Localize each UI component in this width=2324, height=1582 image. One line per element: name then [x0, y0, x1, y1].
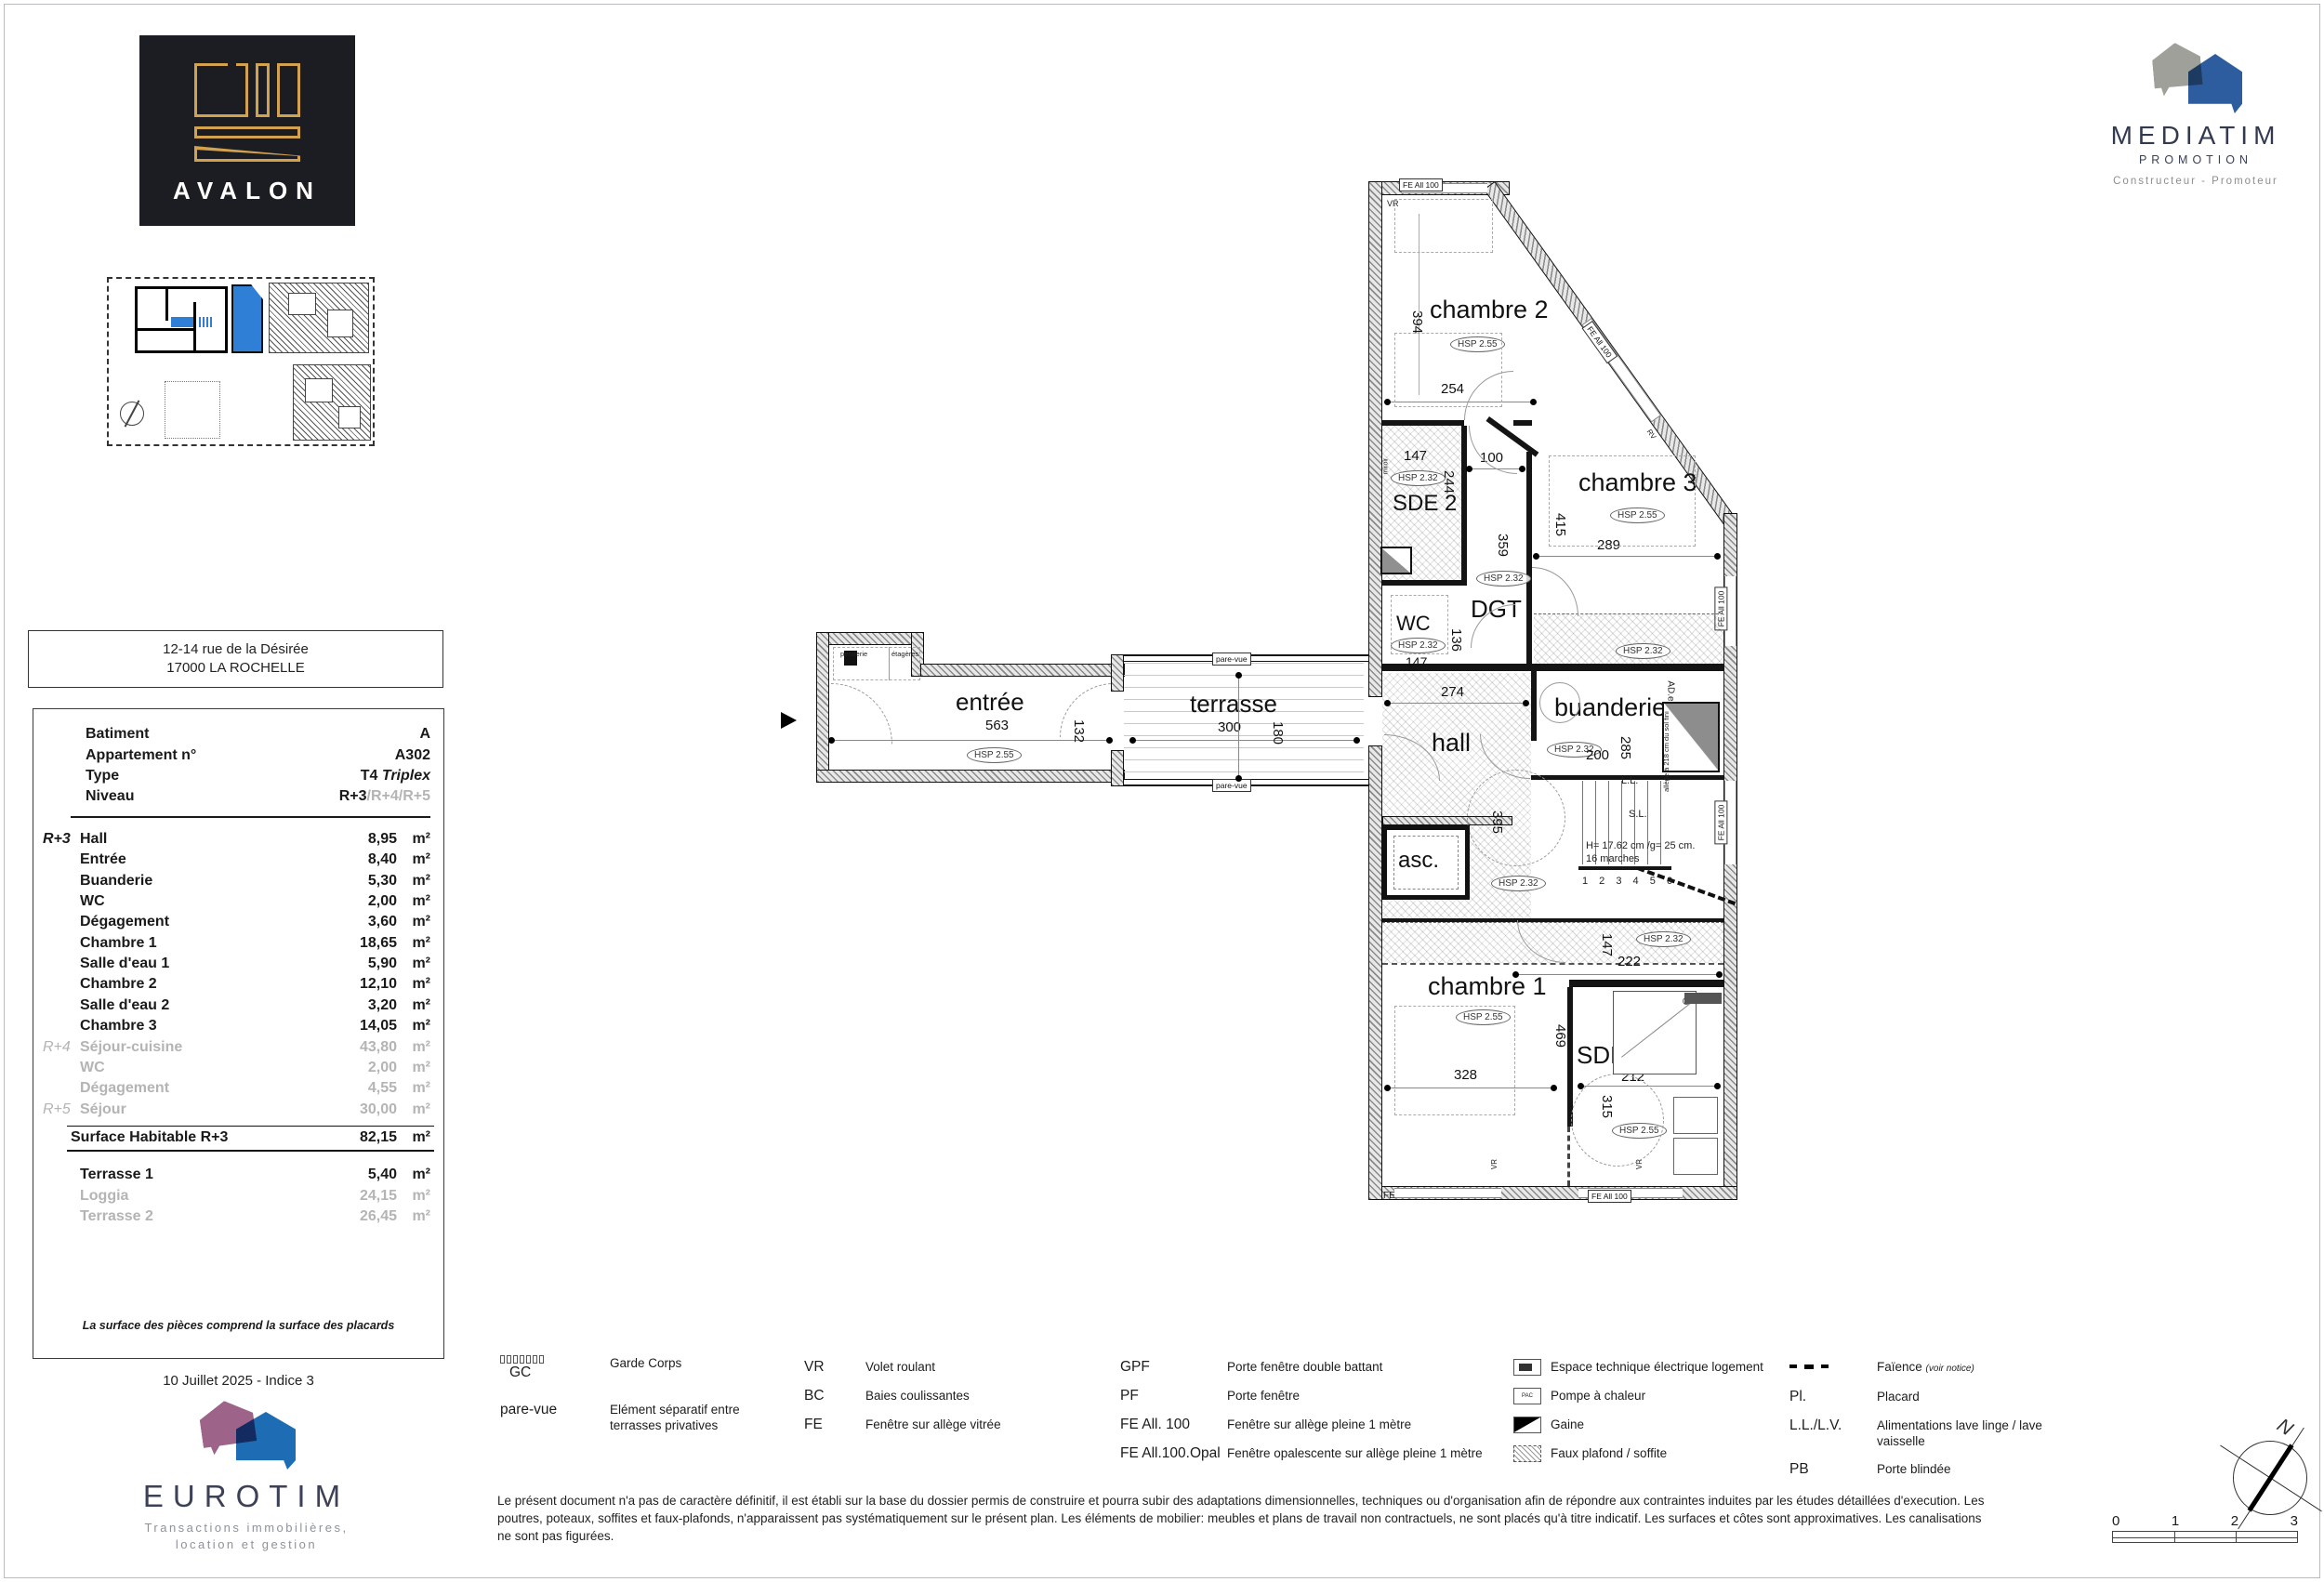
fixture — [1391, 595, 1448, 654]
legend-item-gc: GC Garde Corps — [500, 1355, 798, 1381]
info-row-batiment: Batiment A — [33, 724, 443, 745]
dim-line — [1132, 740, 1357, 741]
mini-compass-icon — [120, 402, 144, 426]
vanity — [1673, 1097, 1718, 1134]
dim: 244 — [1441, 470, 1457, 494]
legend-col-2: VRVolet roulant BCBaies coulissantes FEF… — [804, 1359, 1083, 1445]
room-area-unit: m² — [397, 893, 430, 910]
compass-north-label: N — [2273, 1415, 2297, 1441]
room-area-value: 2,00 — [337, 1060, 397, 1076]
vr-label: VR — [1490, 1159, 1499, 1169]
wall — [1567, 987, 1573, 1127]
room-label-hall: hall — [1432, 729, 1471, 758]
dim: 563 — [985, 718, 1009, 733]
room-area-value: 8,95 — [337, 831, 397, 848]
site-plan-block — [269, 283, 369, 353]
room-area-value: 43,80 — [337, 1039, 397, 1056]
area-row: Salle d'eau 2 3,20 m² — [33, 995, 443, 1016]
room-area-value: 14,05 — [337, 1018, 397, 1035]
dim: 285 — [1618, 736, 1633, 759]
wall — [1382, 664, 1531, 671]
wall — [1111, 750, 1124, 786]
document-date: 10 Juillet 2025 - Indice 3 — [33, 1373, 444, 1389]
terrace-name: Terrasse 1 — [80, 1167, 337, 1183]
terrace-row: Terrasse 2 26,45 m² — [33, 1206, 443, 1227]
avalon-logo-bar — [256, 63, 270, 117]
gaine — [1380, 547, 1412, 574]
door-arc — [1060, 683, 1114, 737]
room-area-value: 30,00 — [337, 1101, 397, 1118]
room-area-value: 3,20 — [337, 997, 397, 1014]
eurotim-tagline2: location et gestion — [112, 1536, 381, 1553]
stair-step-numbers: 1 2 3 4 5 6 — [1582, 876, 1672, 887]
wall — [1569, 980, 1723, 987]
compass-icon: N — [2229, 1437, 2313, 1521]
room-area-unit: m² — [397, 914, 430, 930]
level-tag: R+3 — [33, 831, 80, 848]
eurotim-logo: EUROTIM Transactions immobilières, locat… — [112, 1399, 381, 1553]
room-area-value: 5,30 — [337, 873, 397, 890]
legend-col-5: Faïence (voir notice) Pl.Placard L.L./L.… — [1789, 1359, 2096, 1490]
dim: 394 — [1409, 310, 1425, 334]
room-name: Séjour — [80, 1101, 337, 1118]
room-area-value: 2,00 — [337, 893, 397, 910]
dim: 469 — [1552, 1024, 1568, 1048]
hsp-label: HSP 2.32 — [1616, 643, 1670, 659]
legend-item-vr: VRVolet roulant — [804, 1359, 1083, 1376]
legend-col-4: Espace technique électrique logement PAC… — [1513, 1359, 1792, 1474]
room-label-asc: asc. — [1398, 848, 1439, 874]
dim-line — [1387, 703, 1526, 704]
entry-arrow-icon — [781, 712, 797, 729]
dim: 222 — [1618, 954, 1641, 969]
room-area-value: 4,55 — [337, 1080, 397, 1097]
ll-label: L.L. — [1621, 775, 1638, 786]
address-line2: 17000 LA ROCHELLE — [29, 659, 442, 678]
room-name: Chambre 2 — [80, 976, 337, 993]
stair-height-label: H= 17.62 cm /g= 25 cm. — [1586, 840, 1695, 851]
door-arc — [1532, 567, 1578, 616]
vanity — [1673, 1138, 1718, 1175]
level-tag: R+4 — [33, 1039, 80, 1056]
vr-label: RV — [1645, 428, 1658, 441]
dim-line — [1238, 675, 1239, 779]
room-area-unit: m² — [397, 1101, 430, 1118]
washing-machine — [1539, 682, 1580, 723]
wall — [816, 632, 924, 645]
hsp-label: HSP 2.32 — [1391, 470, 1446, 486]
sl-label: S.L. — [1629, 809, 1647, 820]
window-label: FE All 100 — [1399, 178, 1443, 191]
hsp-label: HSP 2.32 — [1491, 876, 1546, 891]
wall — [1111, 654, 1124, 692]
room-area-unit: m² — [397, 1018, 430, 1035]
window-label: FE — [1383, 1191, 1395, 1201]
turning-circle — [1571, 1074, 1664, 1167]
site-plan-building — [135, 286, 228, 353]
door-arc — [1469, 426, 1517, 474]
terrasse-deck — [1124, 663, 1364, 779]
area-row: Salle d'eau 1 5,90 m² — [33, 954, 443, 974]
dim-line — [1536, 556, 1718, 557]
site-plan-block — [293, 364, 371, 441]
terrace-area-value: 26,45 — [337, 1208, 397, 1225]
area-row: R+3 Hall 8,95 m² — [33, 829, 443, 850]
room-name: Dégagement — [80, 914, 337, 930]
miroir-label: miroir — [1382, 458, 1389, 475]
terrace-row: Terrasse 1 5,40 m² — [33, 1165, 443, 1185]
mediatim-houses-icon — [2103, 37, 2289, 117]
wall — [1531, 671, 1537, 741]
room-area-value: 5,90 — [337, 956, 397, 972]
stair-edge — [1578, 866, 1671, 870]
hsp-label: HSP 2.32 — [1636, 931, 1691, 947]
room-name: Dégagement — [80, 1080, 337, 1097]
area-row: Dégagement 4,55 m² — [33, 1078, 443, 1099]
furniture-bed — [1394, 1006, 1515, 1115]
hsp-label: HSP 2.32 — [1476, 571, 1531, 587]
area-row: WC 2,00 m² — [33, 1058, 443, 1078]
faux-plafond-line — [1382, 963, 1723, 965]
ade-label: AD.e — [1666, 680, 1676, 701]
info-row-type: Type T4 Triplex — [33, 766, 443, 786]
wall — [1382, 420, 1464, 426]
legend-item-pl: Pl.Placard — [1789, 1389, 2096, 1405]
avalon-logo-bar — [277, 63, 300, 117]
dim: 200 — [1586, 747, 1609, 763]
apartment-info-panel: Batiment A Appartement n° A302 Type T4 T… — [33, 708, 444, 1359]
pac-icon: PAC — [1513, 1388, 1541, 1404]
room-area-unit: m² — [397, 1039, 430, 1056]
room-name: Buanderie — [80, 873, 337, 890]
faience-icon — [1789, 1359, 1877, 1369]
legend-item-fauxplafond: Faux plafond / soffite — [1513, 1445, 1792, 1462]
room-area-unit: m² — [397, 1080, 430, 1097]
room-label-terrasse: terrasse — [1190, 690, 1277, 718]
legend-item-feall: FE All. 100Fenêtre sur allège pleine 1 m… — [1120, 1417, 1492, 1433]
dim: 147 — [1599, 933, 1615, 956]
dim: 136 — [1448, 628, 1464, 652]
legend-item-pac: PAC Pompe à chaleur — [1513, 1388, 1792, 1404]
terrace-name: Terrasse 2 — [80, 1208, 337, 1225]
terrace-name: Loggia — [80, 1188, 337, 1205]
terrace-area-value: 24,15 — [337, 1188, 397, 1205]
wall — [1382, 580, 1464, 586]
room-label-chambre1: chambre 1 — [1428, 972, 1547, 1001]
room-area-unit: m² — [397, 831, 430, 848]
pare-vue-label: pare-vue — [1212, 653, 1251, 666]
window-label: FE All 100 — [1714, 801, 1727, 845]
avalon-logo: AVALON — [139, 35, 355, 226]
legend-item-pf: PFPorte fenêtre — [1120, 1388, 1492, 1404]
room-name: Salle d'eau 1 — [80, 956, 337, 972]
legend-col-3: GPFPorte fenêtre double battant PFPorte … — [1120, 1359, 1492, 1474]
faux-plafond-icon — [1513, 1445, 1541, 1462]
info-row-niveau: Niveau R+3/R+4/R+5 — [33, 786, 443, 807]
eurotim-name: EUROTIM — [112, 1479, 381, 1514]
surface-note: La surface des pièces comprend la surfac… — [33, 1319, 443, 1332]
room-area-unit: m² — [397, 997, 430, 1014]
surface-habitable-row: Surface Habitable R+3 82,15 m² — [67, 1126, 434, 1152]
legend-item-pb: PBPorte blindée — [1789, 1461, 2096, 1478]
area-row: Chambre 1 18,65 m² — [33, 933, 443, 954]
area-row: WC 2,00 m² — [33, 891, 443, 912]
room-name: Entrée — [80, 851, 337, 868]
dim: 180 — [1270, 721, 1286, 745]
room-area-value: 8,40 — [337, 851, 397, 868]
room-area-unit: m² — [397, 976, 430, 993]
window — [1394, 1188, 1501, 1198]
avalon-logo-text: AVALON — [139, 177, 355, 205]
door-arc — [831, 683, 892, 745]
divider — [71, 816, 430, 818]
scale-tick: 1 — [2172, 1513, 2179, 1529]
room-name: WC — [80, 1060, 337, 1076]
room-label-sde2: SDE 2 — [1393, 491, 1457, 517]
window-label: FE All 100 — [1588, 1190, 1631, 1203]
site-plan-unit-highlight — [231, 284, 263, 353]
room-name: Chambre 1 — [80, 935, 337, 952]
terrace-area-unit: m² — [397, 1208, 430, 1225]
address-box: 12-14 rue de la Désirée 17000 LA ROCHELL… — [28, 630, 443, 688]
area-rows: R+3 Hall 8,95 m² Entrée 8,40 m² Buanderi… — [33, 829, 443, 1120]
terrace-area-value: 5,40 — [337, 1167, 397, 1183]
wall — [1368, 181, 1382, 697]
dim: 359 — [1495, 534, 1511, 557]
dim: 147 — [1404, 448, 1427, 464]
eurotim-tagline1: Transactions immobilières, — [112, 1520, 381, 1536]
area-row: Entrée 8,40 m² — [33, 850, 443, 870]
room-label-chambre2: chambre 2 — [1430, 296, 1549, 324]
mediatim-logo: MEDIATIM PROMOTION Constructeur - Promot… — [2103, 37, 2289, 187]
legend-item-llv: L.L./L.V.Alimentations lave linge / lave… — [1789, 1417, 2096, 1449]
terrace-area-unit: m² — [397, 1188, 430, 1205]
fixture — [1684, 993, 1722, 1004]
terrace-area-unit: m² — [397, 1167, 430, 1183]
legend-item-gpf: GPFPorte fenêtre double battant — [1120, 1359, 1492, 1376]
legend-item-gaine: Gaine — [1513, 1417, 1792, 1433]
floor-plan: FE All 100 RV FE All 100 VR FE All 100 F… — [799, 177, 1794, 1213]
address-line1: 12-14 rue de la Désirée — [29, 640, 442, 659]
area-row: R+4 Séjour-cuisine 43,80 m² — [33, 1036, 443, 1057]
room-area-unit: m² — [397, 935, 430, 952]
mediatim-tagline: Constructeur - Promoteur — [2103, 176, 2289, 187]
wall — [1368, 745, 1382, 1200]
site-plan-future-building — [165, 381, 220, 439]
site-plan-thumbnail — [107, 277, 375, 446]
furniture-bed — [1549, 455, 1696, 547]
wall — [1461, 426, 1467, 586]
room-area-unit: m² — [397, 851, 430, 868]
room-name: Séjour-cuisine — [80, 1039, 337, 1056]
terrace-rows: Terrasse 1 5,40 m² Loggia 24,15 m² Terra… — [33, 1165, 443, 1227]
legend-item-bc: BCBaies coulissantes — [804, 1388, 1083, 1404]
closet-label: penderie — [840, 650, 867, 658]
wall — [1531, 664, 1723, 671]
room-name: Hall — [80, 831, 337, 848]
legend-item-parevue: pare-vue Elément séparatif entre terrass… — [500, 1402, 798, 1433]
room-area-unit: m² — [397, 1060, 430, 1076]
avalon-logo-shape — [194, 63, 248, 117]
wall — [1526, 452, 1532, 669]
room-name: Salle d'eau 2 — [80, 997, 337, 1014]
stairs — [1582, 781, 1664, 864]
window-label: FE All 100 — [1581, 321, 1618, 363]
pare-vue-label: pare-vue — [1212, 779, 1251, 792]
eurotim-houses-icon — [112, 1399, 381, 1475]
dim: 147 — [1406, 654, 1427, 669]
closet-label: étagères — [891, 650, 918, 658]
wall — [816, 632, 829, 783]
stair-count-label: 16 marches — [1586, 853, 1639, 864]
allege-note: allège à 218 cm du sol fini — [1662, 711, 1670, 792]
room-area-unit: m² — [397, 873, 430, 890]
avalon-logo-notch — [228, 63, 236, 87]
scale-tick: 0 — [2112, 1513, 2119, 1529]
mediatim-sub: PROMOTION — [2103, 153, 2289, 166]
room-label-entree: entrée — [956, 688, 1024, 717]
etel-icon — [1513, 1359, 1541, 1376]
room-name: WC — [80, 893, 337, 910]
legend-col-1: GC Garde Corps pare-vue Elément séparati… — [500, 1355, 798, 1445]
wall — [816, 770, 1125, 783]
turning-circle — [1467, 770, 1565, 866]
room-area-value: 3,60 — [337, 914, 397, 930]
legend-item-feallopal: FE All.100.OpalFenêtre opalescente sur a… — [1120, 1445, 1492, 1462]
plan-sheet: AVALON 12-14 rue de la Désirée 17000 LA … — [0, 0, 2324, 1582]
mediatim-name: MEDIATIM — [2103, 121, 2289, 151]
avalon-logo-hbar — [194, 126, 300, 138]
disclaimer-text: Le présent document n'a pas de caractère… — [497, 1492, 1994, 1545]
dim: 274 — [1441, 684, 1464, 700]
legend-item-etel: Espace technique électrique logement — [1513, 1359, 1792, 1376]
gaine-icon — [1513, 1417, 1541, 1433]
room-area-value: 12,10 — [337, 976, 397, 993]
legend-item-fe: FEFenêtre sur allège vitrée — [804, 1417, 1083, 1433]
garde-corps-icon — [500, 1355, 610, 1364]
furniture — [1394, 199, 1493, 253]
window: FE All 100 — [1581, 318, 1661, 423]
site-plan-highlight-small — [171, 317, 193, 327]
room-name: Chambre 3 — [80, 1018, 337, 1035]
room-area-value: 18,65 — [337, 935, 397, 952]
area-row: Chambre 2 12,10 m² — [33, 974, 443, 995]
avalon-logo-wedge — [194, 146, 300, 162]
wall — [920, 664, 1125, 677]
area-row: Buanderie 5,30 m² — [33, 870, 443, 890]
terrace-row: Loggia 24,15 m² — [33, 1185, 443, 1206]
level-tag: R+5 — [33, 1101, 80, 1118]
area-row: Chambre 3 14,05 m² — [33, 1016, 443, 1036]
info-row-apartment: Appartement n° A302 — [33, 745, 443, 765]
legend-item-faience: Faïence (voir notice) — [1789, 1359, 2096, 1377]
area-row: Dégagement 3,60 m² — [33, 912, 443, 932]
gaine — [1662, 702, 1720, 772]
wall-dashed — [1567, 1127, 1573, 1186]
hsp-label: HSP 2.55 — [967, 747, 1022, 763]
area-row: R+5 Séjour 30,00 m² — [33, 1100, 443, 1120]
room-area-unit: m² — [397, 956, 430, 972]
